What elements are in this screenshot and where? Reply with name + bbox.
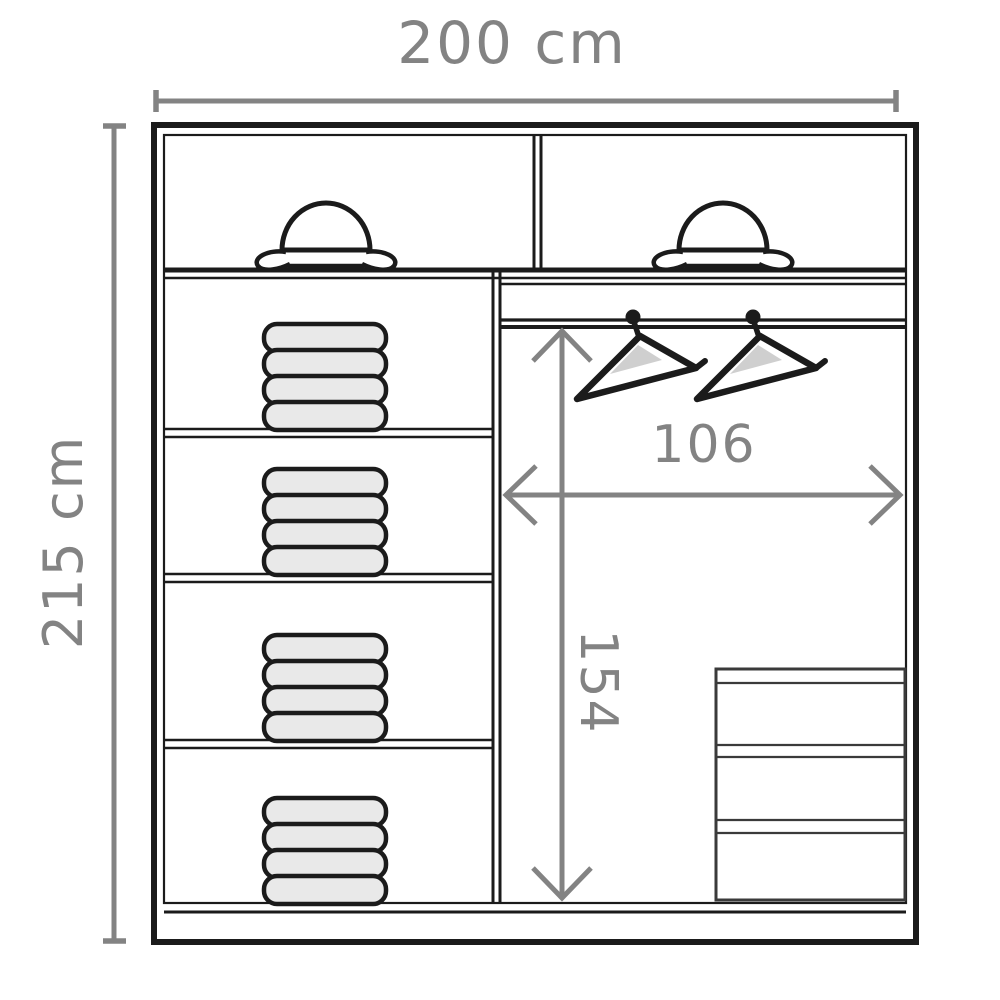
folded-item bbox=[264, 402, 386, 430]
clothes-stack-4 bbox=[264, 798, 386, 904]
interior-width-label: 106 bbox=[651, 415, 756, 475]
clothes-stack-2 bbox=[264, 469, 386, 575]
hanger-hook bbox=[626, 310, 641, 325]
diagram-canvas: 200 cm 215 cm 106 154 bbox=[0, 0, 1000, 1000]
clothes-stack-3 bbox=[264, 635, 386, 741]
dimension-overall-height: 215 cm bbox=[32, 126, 126, 941]
hanger-hook bbox=[746, 310, 761, 325]
overall-height-label: 215 cm bbox=[32, 435, 95, 650]
dimension-overall-width: 200 cm bbox=[156, 9, 896, 112]
folded-item bbox=[264, 713, 386, 741]
folded-item bbox=[264, 547, 386, 575]
wardrobe-dimension-diagram: 200 cm 215 cm 106 154 bbox=[0, 0, 1000, 1000]
interior-height-label: 154 bbox=[568, 629, 628, 734]
overall-width-label: 200 cm bbox=[397, 9, 627, 77]
clothes-stack-1 bbox=[264, 324, 386, 430]
folded-item bbox=[264, 876, 386, 904]
